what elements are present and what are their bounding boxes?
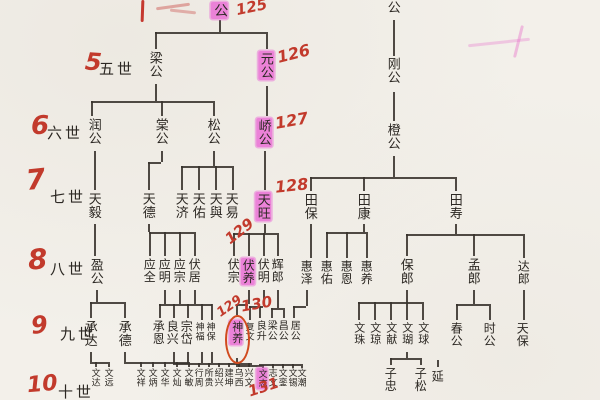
person-name: 文献 <box>384 322 395 345</box>
person-name: 文炳 <box>147 368 156 387</box>
connector-line <box>149 232 194 234</box>
connector-line <box>422 302 424 320</box>
connector-line <box>310 224 312 258</box>
connector-line <box>393 20 395 56</box>
person-name: 橙公 <box>386 123 400 150</box>
connector-line <box>201 352 203 363</box>
generation-label: 八世 <box>50 258 86 279</box>
connector-line <box>346 232 348 258</box>
connector-line <box>456 304 458 320</box>
connector-line <box>124 302 126 318</box>
person-name: 文敏 <box>183 368 192 387</box>
person-name: 文球 <box>416 322 427 345</box>
connector-line <box>264 224 266 233</box>
connector-line <box>90 352 92 362</box>
connector-line <box>374 302 376 320</box>
person-name: 文锡 <box>287 368 296 387</box>
person-name: 乌西 <box>233 368 242 387</box>
person-name: 建坤 <box>223 368 232 387</box>
connector-line <box>363 177 365 191</box>
connector-line <box>90 302 92 318</box>
generation-number-handwritten: 10 <box>26 373 58 398</box>
red-scribble-mark <box>170 9 196 14</box>
genealogy-scan-page: 公景公1255五世梁公元公刚公1266六世润公棠公松公峤公橙公1277七世天毅天… <box>0 0 600 400</box>
connector-line <box>90 362 108 364</box>
connector-line <box>173 304 175 318</box>
person-name: 文祥 <box>135 368 144 387</box>
connector-line <box>94 151 96 190</box>
person-name: 行周 <box>193 368 202 387</box>
person-name: 田寿 <box>448 193 462 220</box>
connector-line <box>95 362 97 367</box>
connector-line <box>266 86 268 116</box>
connector-line <box>406 302 408 320</box>
person-name: 良升 <box>254 320 264 341</box>
person-name: 伏明 <box>257 258 269 283</box>
connector-line <box>393 92 395 121</box>
connector-line <box>473 290 475 304</box>
connector-line <box>293 306 306 308</box>
connector-line <box>358 302 360 320</box>
person-name: 时公 <box>483 322 495 347</box>
person-name: 春公 <box>450 322 462 347</box>
connector-line <box>148 224 150 232</box>
red-number-annotation: 126 <box>276 42 312 66</box>
generation-label: 十世 <box>58 381 94 400</box>
person-name: 惠养 <box>360 260 372 285</box>
connector-line <box>91 101 93 116</box>
connector-line <box>406 234 523 236</box>
person-name: 刚公 <box>386 57 400 84</box>
connector-line <box>164 362 166 367</box>
person-name: 文华 <box>159 368 168 387</box>
connector-line <box>293 306 295 318</box>
person-name: 惠佑 <box>320 260 332 285</box>
red-number-annotation: 128 <box>274 176 309 195</box>
connector-line <box>108 362 110 367</box>
connector-line <box>187 304 189 318</box>
generation-label: 六世 <box>47 122 83 143</box>
person-name: 保郎 <box>399 258 413 285</box>
connector-line <box>455 177 457 191</box>
generation-number-handwritten: 6 <box>31 113 49 139</box>
person-name: 田康 <box>356 193 370 220</box>
person-name: 子忠 <box>384 367 396 392</box>
connector-line <box>198 363 200 367</box>
connector-line <box>208 363 210 367</box>
connector-line <box>363 224 365 232</box>
person-name-highlighted: 伏养 <box>241 258 255 285</box>
red-number-annotation: 130 <box>240 294 273 314</box>
connector-line <box>390 358 420 360</box>
person-name: 文珠 <box>352 322 363 345</box>
person-name: 梁公 <box>148 51 162 78</box>
person-name: 伏居 <box>188 258 200 283</box>
red-number-annotation: 125 <box>235 0 269 18</box>
connector-line <box>211 352 213 363</box>
person-name: 绍兴 <box>213 368 222 387</box>
connector-line <box>283 308 285 318</box>
person-name: 天易 <box>224 192 238 219</box>
person-name: 承达 <box>83 320 97 347</box>
connector-line <box>248 233 250 256</box>
connector-line <box>366 232 368 258</box>
connector-line <box>181 166 232 168</box>
person-name: 天與 <box>208 192 222 219</box>
connector-line <box>124 352 126 362</box>
connector-line <box>211 304 213 320</box>
connector-line <box>149 232 151 256</box>
connector-line <box>455 224 457 234</box>
person-name-highlighted: 峤公 <box>256 118 272 147</box>
person-name: 应明 <box>158 258 170 283</box>
person-name: 居公 <box>288 320 298 341</box>
person-name: 文潮 <box>296 368 305 387</box>
red-highlight-circle <box>225 315 250 364</box>
person-name: 伏宗 <box>227 258 239 283</box>
red-tick-mark <box>141 0 144 22</box>
person-name: 神保 <box>205 322 214 341</box>
generation-label: 五世 <box>99 58 135 79</box>
person-name: 惠泽 <box>300 260 312 285</box>
connector-line <box>266 32 268 49</box>
person-name: 神福 <box>194 322 203 341</box>
red-number-annotation: 127 <box>274 110 310 132</box>
connector-line <box>152 362 154 367</box>
person-name: 子松 <box>414 367 426 392</box>
person-name: 天毅 <box>87 192 101 219</box>
connector-line <box>198 166 200 190</box>
person-name: 应全 <box>143 258 155 283</box>
connector-line <box>194 290 196 304</box>
generation-number-handwritten: 9 <box>30 312 49 338</box>
generation-label: 七世 <box>50 186 86 207</box>
connector-line <box>155 84 157 101</box>
connector-line <box>159 304 161 318</box>
generation-number-handwritten: 8 <box>27 245 48 274</box>
connector-line <box>393 156 395 177</box>
connector-line <box>96 290 98 302</box>
person-name: 天保 <box>516 322 528 347</box>
connector-line <box>523 290 525 320</box>
person-name: 盈公 <box>89 258 103 285</box>
connector-line <box>187 352 189 363</box>
connector-line <box>148 162 161 164</box>
connector-line <box>218 363 220 367</box>
connector-line <box>390 302 392 320</box>
red-number-annotation: 129 <box>223 216 257 247</box>
person-name: 昌公 <box>276 320 286 341</box>
connector-line <box>179 290 181 304</box>
connector-line <box>310 177 312 191</box>
person-name: 天济 <box>174 192 188 219</box>
connector-line <box>489 304 491 320</box>
connector-line <box>420 358 422 365</box>
person-name: 延 <box>431 370 443 383</box>
connector-line <box>155 32 266 34</box>
connector-line <box>277 233 279 256</box>
connector-line <box>164 290 166 304</box>
person-name: 文达 <box>90 368 99 387</box>
connector-line <box>90 302 124 304</box>
connector-line <box>155 32 157 49</box>
connector-line <box>194 232 196 256</box>
connector-line <box>94 224 96 256</box>
connector-line <box>264 151 266 190</box>
connector-line <box>161 151 163 162</box>
person-name: 天德 <box>141 192 155 219</box>
connector-line <box>326 232 328 258</box>
person-name: 达郎 <box>517 260 529 285</box>
person-name-highlighted: 天旺 <box>255 192 271 221</box>
person-name: 良兴 <box>166 320 178 345</box>
person-name: 所贵 <box>203 368 212 387</box>
connector-line <box>259 364 301 366</box>
connector-line <box>201 304 203 320</box>
connector-line <box>228 363 230 367</box>
person-name: 承德 <box>117 320 131 347</box>
connector-line <box>215 166 217 190</box>
connector-line <box>263 233 265 256</box>
person-name-highlighted: 公 <box>211 2 228 19</box>
connector-line <box>164 232 166 256</box>
connector-line <box>232 166 234 190</box>
person-name: 承恩 <box>152 320 164 345</box>
person-name: 润公 <box>87 118 101 145</box>
person-name: 文灿 <box>171 368 180 387</box>
connector-line <box>406 290 408 302</box>
person-name: 惠恩 <box>340 260 352 285</box>
connector-line <box>390 358 392 365</box>
connector-line <box>437 360 439 367</box>
connector-line <box>523 234 525 258</box>
connector-line <box>140 362 142 367</box>
connector-line <box>306 290 308 306</box>
person-name: 田保 <box>303 193 317 220</box>
person-name: 孟郎 <box>466 258 480 285</box>
connector-line <box>179 232 181 256</box>
connector-line <box>310 177 455 179</box>
person-name: 宗岱 <box>180 320 192 345</box>
connector-line <box>213 101 215 116</box>
person-name: 文瑚 <box>400 322 411 345</box>
person-name: 天佑 <box>191 192 205 219</box>
generation-number-handwritten: 5 <box>84 49 102 74</box>
connector-line <box>406 234 408 256</box>
connector-line <box>456 304 489 306</box>
person-name-highlighted: 元公 <box>258 51 274 80</box>
pink-scribble-mark <box>468 38 530 47</box>
connector-line <box>161 101 163 116</box>
connector-line <box>173 352 175 363</box>
connector-line <box>159 304 212 306</box>
person-name: 辉郎 <box>271 258 283 283</box>
person-name: 应宗 <box>173 258 185 283</box>
connector-line <box>91 101 213 103</box>
person-name: 景公 <box>386 0 400 14</box>
connector-line <box>473 234 475 256</box>
person-name: 文远 <box>103 368 112 387</box>
connector-line <box>181 166 183 190</box>
person-name: 文琼 <box>368 322 379 345</box>
person-name: 松公 <box>206 118 220 145</box>
generation-number-handwritten: 7 <box>25 165 47 195</box>
person-name: 棠公 <box>154 118 168 145</box>
connector-line <box>219 20 221 32</box>
person-name: 梁公 <box>265 320 275 341</box>
connector-line <box>277 290 279 308</box>
connector-line <box>213 151 215 166</box>
connector-line <box>148 162 150 190</box>
